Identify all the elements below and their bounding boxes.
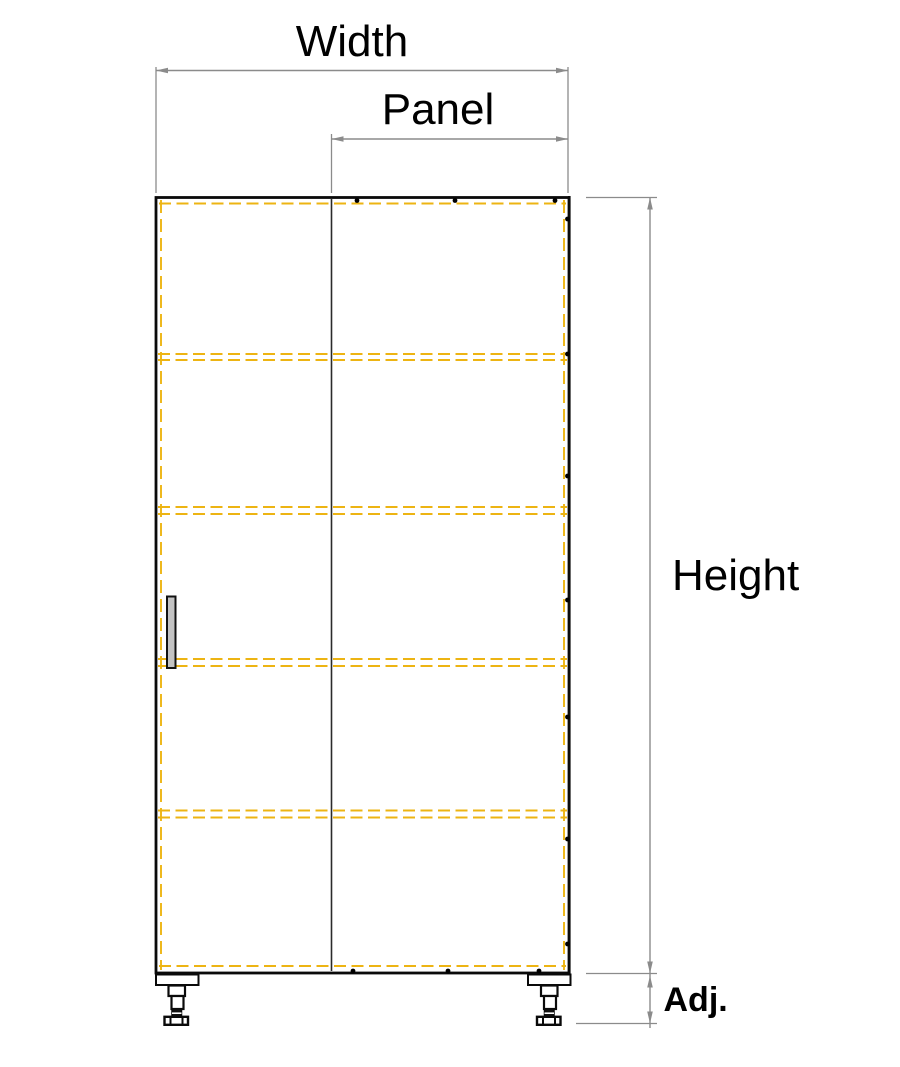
svg-text:Adj.: Adj. xyxy=(664,981,728,1019)
svg-text:Height: Height xyxy=(672,551,799,600)
svg-text:Width: Width xyxy=(296,17,408,66)
svg-text:Panel: Panel xyxy=(382,85,495,134)
